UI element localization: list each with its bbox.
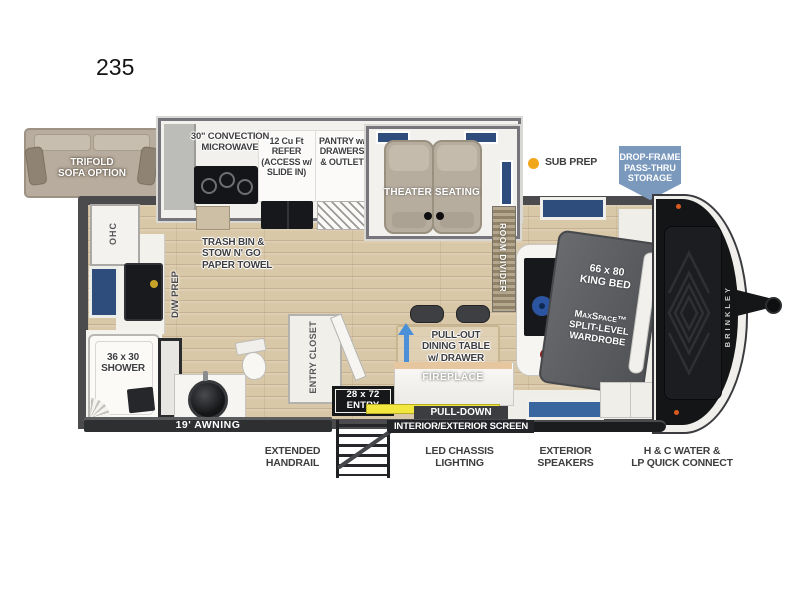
marker-light-icon bbox=[674, 410, 679, 415]
theater-seating-label: THEATER SEATING bbox=[377, 187, 487, 198]
front-cap-panel bbox=[664, 226, 722, 400]
room-divider-label: ROOM DIVIDER bbox=[492, 208, 514, 308]
exterior-speakers-label: EXTERIOR SPEAKERS bbox=[523, 446, 608, 470]
pantry-label: PANTRY w/ DRAWERS & OUTLET bbox=[315, 136, 369, 167]
extended-handrail-label: EXTENDED HANDRAIL bbox=[250, 446, 335, 470]
ohc-label: OHC bbox=[90, 206, 136, 260]
cooktop-icon bbox=[194, 166, 258, 204]
faucet-icon bbox=[150, 280, 158, 288]
screen-label-line1: PULL-DOWN bbox=[414, 406, 508, 419]
screen-label-text2: INTERIOR/EXTERIOR SCREEN bbox=[394, 421, 528, 432]
sub-prep-legend-label: SUB PREP bbox=[545, 157, 597, 169]
brand-chevron-logo bbox=[665, 227, 721, 399]
cupholder-icon bbox=[436, 212, 444, 220]
brand-name-text: BRINKLEY bbox=[723, 285, 732, 347]
awning-label: 19' AWNING bbox=[176, 419, 241, 431]
room-divider-label-text: ROOM DIVIDER bbox=[498, 223, 508, 292]
led-chassis-label: LED CHASSIS LIGHTING bbox=[412, 446, 507, 470]
marker-light-icon bbox=[676, 204, 681, 209]
stool-icon bbox=[410, 305, 444, 323]
hitch-jack-icon bbox=[765, 297, 782, 314]
pull-out-arrow-icon bbox=[404, 334, 409, 364]
screen-label-text1: PULL-DOWN bbox=[430, 407, 491, 418]
toilet-bowl bbox=[240, 350, 268, 382]
screen-label-line2: INTERIOR/EXTERIOR SCREEN bbox=[388, 420, 534, 433]
sub-prep-legend-dot-icon bbox=[528, 158, 539, 169]
bedroom-cabinet bbox=[600, 382, 660, 418]
shower-bench bbox=[127, 387, 155, 414]
footrest bbox=[392, 212, 426, 228]
window-icon bbox=[526, 399, 604, 420]
floorplan-title: 235 bbox=[96, 54, 134, 81]
dw-prep-label-text: D/W PREP bbox=[170, 271, 181, 318]
window-icon bbox=[89, 266, 119, 318]
floorplan-canvas: 235 TRIFOLD SOFA OPTION 30" CONVECTION M… bbox=[0, 0, 800, 600]
awning-bar: 19' AWNING bbox=[84, 417, 332, 432]
burner-icon bbox=[201, 178, 217, 194]
kitchen-drawer bbox=[196, 206, 230, 230]
water-lp-label: H & C WATER & LP QUICK CONNECT bbox=[618, 446, 746, 470]
headrest bbox=[437, 145, 477, 171]
brand-name-label: BRINKLEY bbox=[720, 258, 734, 374]
pass-thru-storage-badge: DROP-FRAME PASS-THRU STORAGE bbox=[619, 146, 681, 200]
entry-closet-label-text: ENTRY CLOSET bbox=[308, 321, 318, 394]
trifold-sofa-inset: TRIFOLD SOFA OPTION bbox=[24, 128, 160, 198]
trifold-sofa-label: TRIFOLD SOFA OPTION bbox=[26, 157, 158, 179]
vessel-sink-icon bbox=[188, 380, 228, 420]
cupholder-icon bbox=[424, 212, 432, 220]
fireplace-label: FIREPLACE bbox=[394, 372, 512, 383]
dw-prep-label: D/W PREP bbox=[167, 264, 183, 324]
kitchen-sink-icon bbox=[124, 263, 163, 321]
refrigerator-icon bbox=[261, 201, 313, 229]
window-icon bbox=[500, 160, 513, 206]
footrest bbox=[440, 212, 474, 228]
faucet-icon bbox=[203, 371, 208, 381]
stool-icon bbox=[456, 305, 490, 323]
shower-label: 36 x 30 SHOWER bbox=[90, 352, 156, 375]
burner-icon bbox=[237, 179, 253, 195]
trash-bin-label: TRASH BIN & STOW N' GO PAPER TOWEL bbox=[202, 237, 282, 271]
headrest bbox=[389, 145, 429, 171]
burner-icon bbox=[219, 172, 235, 188]
pantry-shelves-icon bbox=[317, 201, 369, 230]
entry-closet-label: ENTRY CLOSET bbox=[288, 316, 338, 398]
refrigerator-label: 12 Cu Ft REFER (ACCESS w/ SLIDE IN) bbox=[258, 136, 315, 177]
island-counter-edge bbox=[394, 362, 512, 369]
ohc-label-text: OHC bbox=[108, 222, 118, 245]
skylight-window-icon bbox=[540, 197, 606, 220]
dining-table-label: PULL-OUT DINING TABLE w/ DRAWER bbox=[414, 330, 498, 364]
